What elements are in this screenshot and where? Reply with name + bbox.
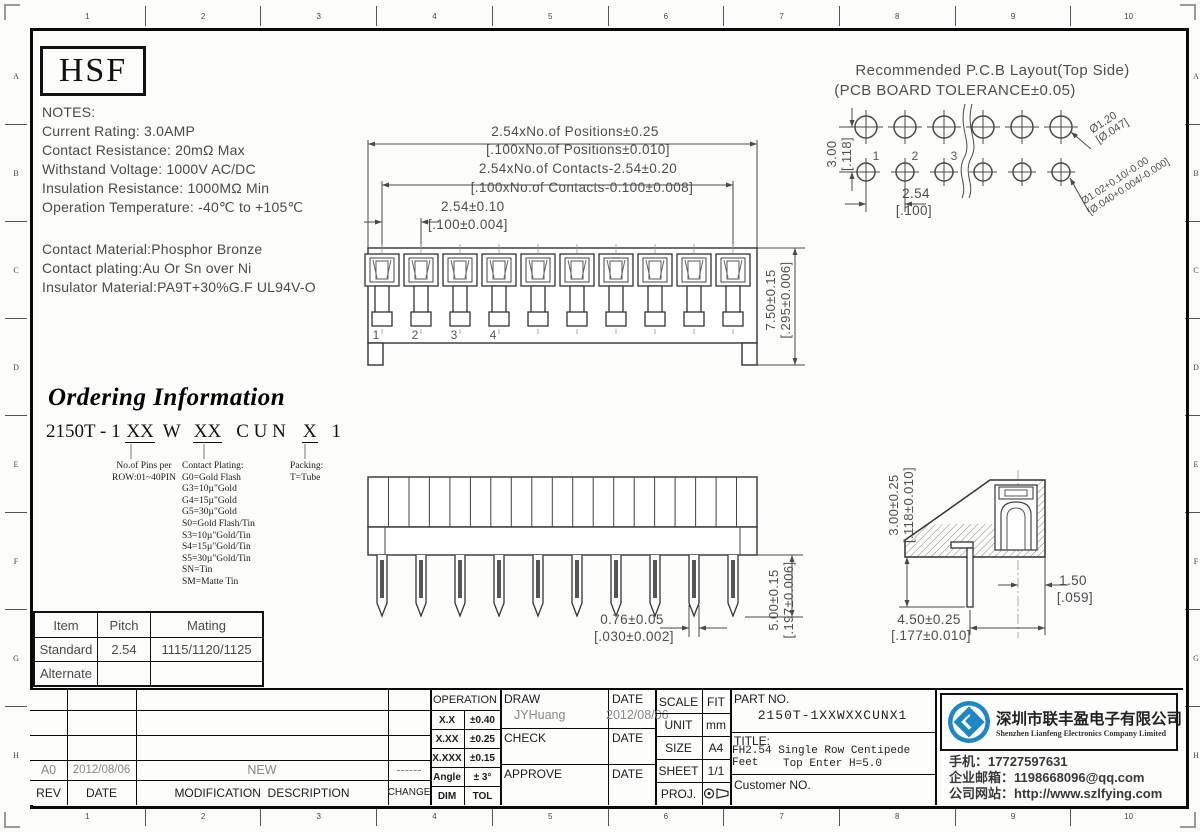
tolerance-row: X.X ±0.40 bbox=[430, 710, 500, 729]
plating-option: S0=Gold Flash/Tin bbox=[182, 519, 255, 531]
ruler-number: 5 bbox=[493, 6, 609, 26]
ruler-number: 10 bbox=[1071, 806, 1186, 826]
hsf-logo: HSF bbox=[40, 46, 146, 96]
scale-value: FIT bbox=[702, 690, 730, 713]
ruler-number: 1 bbox=[30, 6, 146, 26]
revision-date: 2012/08/06 bbox=[67, 760, 136, 780]
ruler-number: 10 bbox=[1071, 6, 1186, 26]
ruler-number: 2 bbox=[146, 6, 262, 26]
code-plating: XX bbox=[193, 421, 222, 443]
mating-table-header-row: Item Pitch Mating bbox=[35, 613, 262, 637]
ruler-number: 6 bbox=[609, 6, 725, 26]
ordering-title: Ordering Information bbox=[48, 384, 285, 412]
projection-symbol bbox=[702, 786, 730, 801]
revision-table: A0 2012/08/06 NEW ------ REV DATE MODIFI… bbox=[30, 690, 430, 805]
pcb-pin-label: 1 bbox=[870, 149, 882, 163]
dim-pitch-mm: 2.54±0.10 bbox=[441, 199, 505, 214]
dim-positions-mm: 2.54xNo.of Positions±0.25 bbox=[425, 124, 725, 139]
ruler-number: 6 bbox=[609, 806, 725, 826]
plating-option: G3=10µ"Gold bbox=[182, 484, 255, 496]
plating-option: G4=15µ"Gold bbox=[182, 496, 255, 508]
ruler-number: 5 bbox=[493, 806, 609, 826]
note-line: Withstand Voltage: 1000V AC/DC bbox=[42, 160, 303, 179]
plating-option: S3=10µ"Gold/Tin bbox=[182, 531, 255, 543]
plating-option: G5=30µ"Gold bbox=[182, 507, 255, 519]
ruler-letter: A bbox=[5, 28, 27, 125]
tolerance-row: DIM TOL bbox=[430, 786, 500, 805]
code-pins: XX bbox=[125, 421, 154, 443]
corner-mark bbox=[4, 812, 20, 828]
ruler-letter: E bbox=[5, 416, 27, 513]
company-name-cn: 深圳市联丰盈电子有限公司 bbox=[996, 707, 1182, 729]
plating-options: G0=Gold FlashG3=10µ"GoldG4=15µ"GoldG5=30… bbox=[182, 473, 255, 589]
ruler-top: 12345678910 bbox=[30, 6, 1186, 26]
tolerance-rows: X.X ±0.40 X.XX ±0.25 X.XXX ±0.15 Angle ±… bbox=[430, 710, 500, 805]
revision-rev: A0 bbox=[30, 760, 67, 780]
mating-table-row: Standard 2.54 1115/1120/1125 bbox=[35, 637, 262, 661]
company-contacts: 手机：17727597631 企业邮箱：1198668096@qq.com 公司… bbox=[949, 754, 1162, 802]
note-line: Contact plating:Au Or Sn over Ni bbox=[42, 259, 316, 278]
ruler-bottom: 12345678910 bbox=[30, 806, 1186, 826]
pcb-layout-title: Recommended P.C.B Layout(Top Side) bbox=[795, 62, 1190, 79]
top-view-right-foot bbox=[742, 343, 757, 365]
tolerance-row: X.XX ±0.25 bbox=[430, 729, 500, 748]
mating-table-row: Alternate bbox=[35, 661, 262, 685]
company-header: 深圳市联丰盈电子有限公司 Shenzhen Lianfeng Electroni… bbox=[940, 693, 1178, 751]
ruler-left: ABCDEFGH bbox=[5, 28, 27, 803]
revision-change: ------ bbox=[388, 760, 430, 780]
ruler-number: 4 bbox=[377, 6, 493, 26]
engineering-drawing-sheet: 12345678910 12345678910 ABCDEFGH ABCDEFG… bbox=[0, 0, 1200, 832]
note-line: Insulation Resistance: 1000MΩ Min bbox=[42, 179, 303, 198]
dim-contacts-mm: 2.54xNo.of Contacts-2.54±0.20 bbox=[428, 161, 728, 176]
company-phone: 手机：17727597631 bbox=[949, 754, 1162, 770]
ruler-letter: D bbox=[5, 319, 27, 416]
front-view-lower-body bbox=[368, 527, 757, 555]
plating-option: S5=30µ"Gold/Tin bbox=[182, 554, 255, 566]
dim-pcb-col-pitch-mm: 2.54 bbox=[886, 186, 946, 201]
unit-value: mm bbox=[702, 713, 730, 736]
pcb-pin-label: 3 bbox=[948, 149, 960, 163]
note-line: Operation Temperature: -40℃ to +105℃ bbox=[42, 198, 303, 217]
dim-top-view-height: 7.50±0.15 [.295±0.006] bbox=[763, 235, 793, 365]
part-info-block: PART NO. 2150T-1XXWXXCUNX1 TITLE: FH2.54… bbox=[730, 690, 935, 805]
mating-table: Item Pitch Mating Standard 2.54 1115/112… bbox=[33, 611, 264, 687]
ordering-pins-note: No.of Pins per ROW:01~40PIN bbox=[106, 461, 182, 484]
ruler-number: 8 bbox=[840, 6, 956, 26]
ordering-leader-lines bbox=[40, 443, 360, 461]
ordering-plating-note: Contact Plating: G0=Gold FlashG3=10µ"Gol… bbox=[182, 461, 255, 589]
company-logo bbox=[946, 699, 992, 745]
size-value: A4 bbox=[702, 736, 730, 759]
contact-number: 1 bbox=[369, 328, 383, 342]
contact-number: 2 bbox=[408, 328, 422, 342]
dim-side-height: 3.00±0.25 [.118±0.010] bbox=[886, 445, 916, 565]
title-block: A0 2012/08/06 NEW ------ REV DATE MODIFI… bbox=[30, 688, 1183, 805]
materials-list: Contact Material:Phosphor BronzeContact … bbox=[42, 240, 316, 297]
ruler-number: 3 bbox=[261, 806, 377, 826]
pcb-layout-subtitle: (PCB BOARD TOLERANCE±0.05) bbox=[795, 82, 1115, 99]
dim-side-offset-mm: 1.50 bbox=[1048, 573, 1098, 588]
note-line: Insulator Material:PA9T+30%G.F UL94V-O bbox=[42, 278, 316, 297]
corner-mark bbox=[1180, 4, 1196, 20]
tolerance-title: OPERATION bbox=[430, 690, 500, 710]
ordering-packing-note: Packing: T=Tube bbox=[290, 461, 323, 484]
note-line: Current Rating: 3.0AMP bbox=[42, 122, 303, 141]
dim-contacts-in: [.100xNo.of Contacts-0.100±0.008] bbox=[432, 180, 732, 195]
pcb-holes-bottom bbox=[852, 158, 1075, 186]
ruler-letter: H bbox=[5, 707, 27, 803]
sheet-value: 1/1 bbox=[702, 759, 730, 782]
plating-option: S4=15µ"Gold/Tin bbox=[182, 542, 255, 554]
ruler-number: 9 bbox=[956, 6, 1072, 26]
ruler-letter: F bbox=[5, 513, 27, 610]
dim-side-offset-in: [.059] bbox=[1045, 590, 1105, 605]
company-name-en: Shenzhen Lianfeng Electronics Company Li… bbox=[996, 729, 1182, 738]
dim-positions-in: [.100xNo.of Positions±0.010] bbox=[428, 142, 728, 157]
draw-name: JYHuang bbox=[514, 708, 565, 722]
ruler-number: 2 bbox=[146, 806, 262, 826]
pcb-pin-label: 2 bbox=[909, 149, 921, 163]
ruler-letter: B bbox=[5, 125, 27, 222]
top-view-left-foot bbox=[368, 343, 383, 365]
notes-title: NOTES: bbox=[42, 103, 95, 122]
revision-desc: NEW bbox=[136, 760, 388, 780]
dim-pitch-in: [.100±0.004] bbox=[428, 217, 508, 232]
hsf-logo-text: HSF bbox=[59, 52, 127, 90]
ruler-number: 7 bbox=[724, 6, 840, 26]
ruler-number: 7 bbox=[724, 806, 840, 826]
plating-option: SN=Tin bbox=[182, 565, 255, 577]
approvals-block: DRAW DATE JYHuang 2012/08/06 CHECK DATE … bbox=[500, 690, 655, 805]
dim-tail-mm: 0.76±0.05 bbox=[587, 612, 677, 627]
company-block: 深圳市联丰盈电子有限公司 Shenzhen Lianfeng Electroni… bbox=[935, 690, 1183, 805]
front-view-upper-body bbox=[368, 477, 757, 527]
ruler-number: 4 bbox=[377, 806, 493, 826]
tolerance-row: Angle ± 3° bbox=[430, 767, 500, 786]
dim-pcb-row-pitch: 3.00 [.118] bbox=[824, 121, 854, 187]
dim-side-depth-in: [.177±0.010] bbox=[871, 628, 991, 643]
doc-info-block: SCALE FIT UNIT mm SIZE A4 SHEET 1/1 PROJ… bbox=[655, 690, 730, 805]
contact-number: 3 bbox=[447, 328, 461, 342]
corner-mark bbox=[4, 4, 20, 20]
break-line bbox=[968, 104, 974, 198]
ruler-number: 1 bbox=[30, 806, 146, 826]
dim-pcb-col-pitch-in: [.100] bbox=[884, 203, 944, 218]
plating-option: G0=Gold Flash bbox=[182, 473, 255, 485]
ruler-number: 8 bbox=[840, 806, 956, 826]
front-view-pins bbox=[377, 555, 738, 616]
dim-side-depth-mm: 4.50±0.25 bbox=[874, 612, 984, 627]
ruler-number: 3 bbox=[261, 6, 377, 26]
corner-mark bbox=[1180, 812, 1196, 828]
part-number: 2150T-1XXWXXCUNX1 bbox=[730, 708, 935, 723]
contact-number: 4 bbox=[486, 328, 500, 342]
break-line bbox=[961, 104, 967, 198]
plating-option: SM=Matte Tin bbox=[182, 577, 255, 589]
ordering-code: 2150T - 1 XXWXXC U NX1 bbox=[46, 421, 341, 443]
dim-pin-length: 5.00±0.15 [.197±0.006] bbox=[766, 535, 796, 665]
ruler-letter: C bbox=[5, 222, 27, 319]
note-line: Contact Material:Phosphor Bronze bbox=[42, 240, 316, 259]
tolerance-table: OPERATION X.X ±0.40 X.XX ±0.25 X.XXX ±0.… bbox=[430, 690, 500, 805]
company-website: 公司网站：http://www.szlfying.com bbox=[949, 786, 1162, 802]
company-email: 企业邮箱：1198668096@qq.com bbox=[949, 770, 1162, 786]
notes-list: Current Rating: 3.0AMPContact Resistance… bbox=[42, 122, 303, 217]
tolerance-row: X.XXX ±0.15 bbox=[430, 748, 500, 767]
code-packing: X bbox=[302, 421, 318, 443]
note-line: Contact Resistance: 20mΩ Max bbox=[42, 141, 303, 160]
dim-tail-in: [.030±0.002] bbox=[579, 629, 689, 644]
drawing-title-line2: Top Enter H=5.0 bbox=[730, 758, 935, 770]
ruler-letter: G bbox=[5, 610, 27, 707]
ruler-number: 9 bbox=[956, 806, 1072, 826]
